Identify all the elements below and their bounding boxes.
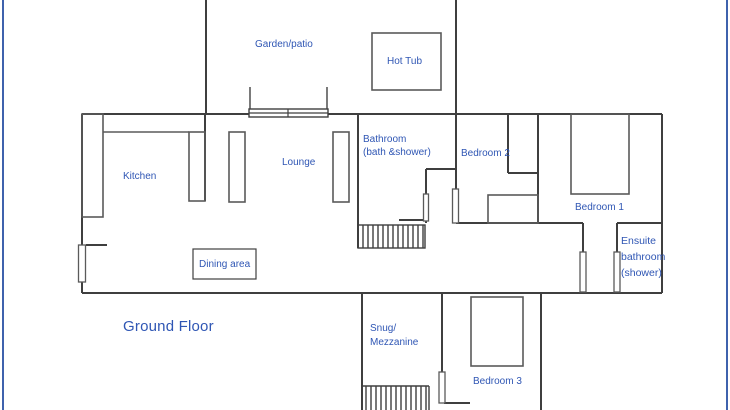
room-label-bedroom3: Bedroom 3 [473, 375, 522, 388]
room-label-kitchen: Kitchen [123, 170, 156, 183]
room-label-ensuite: Ensuite bathroom (shower) [621, 233, 665, 281]
staircase-upper [358, 225, 425, 248]
room-label-garden: Garden/patio [255, 38, 313, 51]
staircase-lower [362, 386, 429, 410]
kitchen-counters [82, 114, 205, 217]
bedroom1-door-marker [580, 252, 586, 292]
bedroom3-bed [471, 297, 523, 366]
room-label-bedroom2: Bedroom 2 [461, 147, 510, 160]
bedroom3-door-marker [439, 372, 445, 403]
floor-plan-canvas: Garden/patio Hot Tub Kitchen Lounge Bath… [0, 0, 730, 410]
room-label-hot-tub: Hot Tub [387, 55, 422, 68]
room-label-bathroom: Bathroom (bath &shower) [363, 133, 431, 159]
bedroom1-bed [571, 114, 629, 194]
room-label-bedroom1: Bedroom 1 [575, 201, 624, 214]
bedroom2-bed [488, 195, 538, 223]
wc-door-marker [424, 194, 429, 221]
patio-door-marker [79, 245, 86, 282]
lounge-window [249, 87, 328, 117]
room-label-dining: Dining area [199, 258, 250, 271]
ensuite-door-marker [614, 252, 620, 292]
room-label-lounge: Lounge [282, 156, 315, 169]
floor-title: Ground Floor [123, 320, 214, 333]
lower-wing-walls [362, 293, 541, 410]
room-label-snug: Snug/ Mezzanine [370, 322, 418, 350]
bathroom-door-marker [453, 189, 459, 223]
